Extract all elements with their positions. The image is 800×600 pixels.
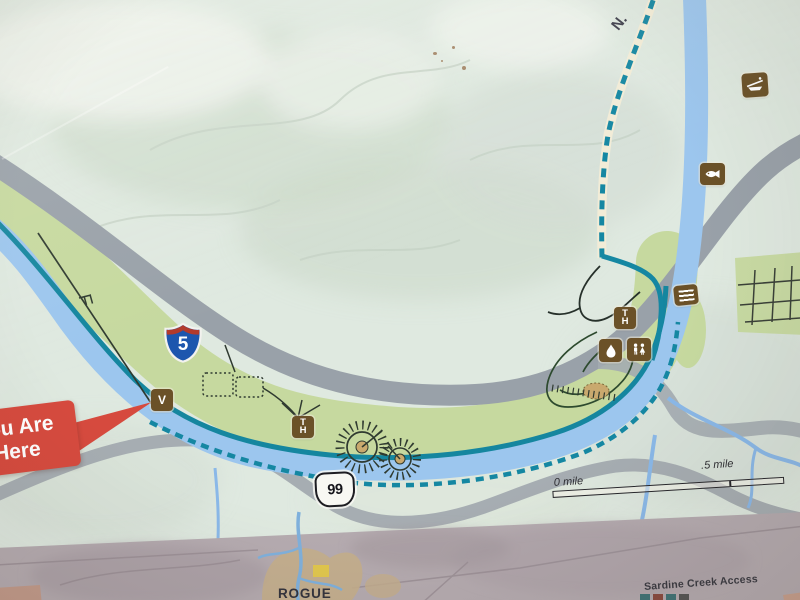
dirt-speck xyxy=(452,46,455,49)
amenity-icon xyxy=(679,594,689,600)
scale-start-label: 0 mile xyxy=(554,475,584,489)
route-99-number: 99 xyxy=(327,481,343,498)
scale-half-mile-tick xyxy=(729,481,731,486)
fish-glyph xyxy=(703,167,723,181)
ramp-stripes-glyph xyxy=(678,289,694,302)
inset-highway-marker xyxy=(313,565,329,577)
scale-end-label: .5 mile xyxy=(701,458,734,472)
access-amenity-icons xyxy=(640,594,689,600)
inset-town-label: ROGUE xyxy=(278,586,332,600)
restroom-figures-glyph xyxy=(631,343,647,356)
east-park-clearing xyxy=(583,383,609,399)
trailhead-icon-letters: TH xyxy=(299,419,308,436)
dirt-speck xyxy=(433,52,437,55)
route-99-shield: 99 xyxy=(314,471,356,508)
amenity-icon xyxy=(666,594,676,600)
trailhead-icon-west: TH xyxy=(292,416,314,438)
inset-edge-band xyxy=(0,585,42,600)
drinking-water-icon xyxy=(599,339,622,362)
water-drop-glyph xyxy=(603,343,619,359)
boat-launch-icon xyxy=(741,72,769,98)
interstate-5-number: 5 xyxy=(163,334,203,356)
restrooms-icon xyxy=(627,338,651,361)
amenity-icon xyxy=(640,594,650,600)
dirt-speck xyxy=(462,66,466,70)
viewpoint-icon-letter: V xyxy=(158,393,166,407)
viewpoint-icon: V xyxy=(151,389,173,411)
trail-map-sign-photo: V TH TH xyxy=(0,0,800,600)
boat-glyph xyxy=(744,75,765,94)
trailhead-icon-east: TH xyxy=(614,307,636,329)
dirt-speck xyxy=(441,60,443,62)
amenity-icon xyxy=(653,594,663,600)
fishing-icon xyxy=(700,163,725,185)
boat-ramp-icon xyxy=(673,284,699,306)
you-are-here-line2: Here xyxy=(0,437,42,466)
trailhead-icon-letters: TH xyxy=(621,310,630,327)
interstate-5-shield: 5 xyxy=(163,321,203,363)
